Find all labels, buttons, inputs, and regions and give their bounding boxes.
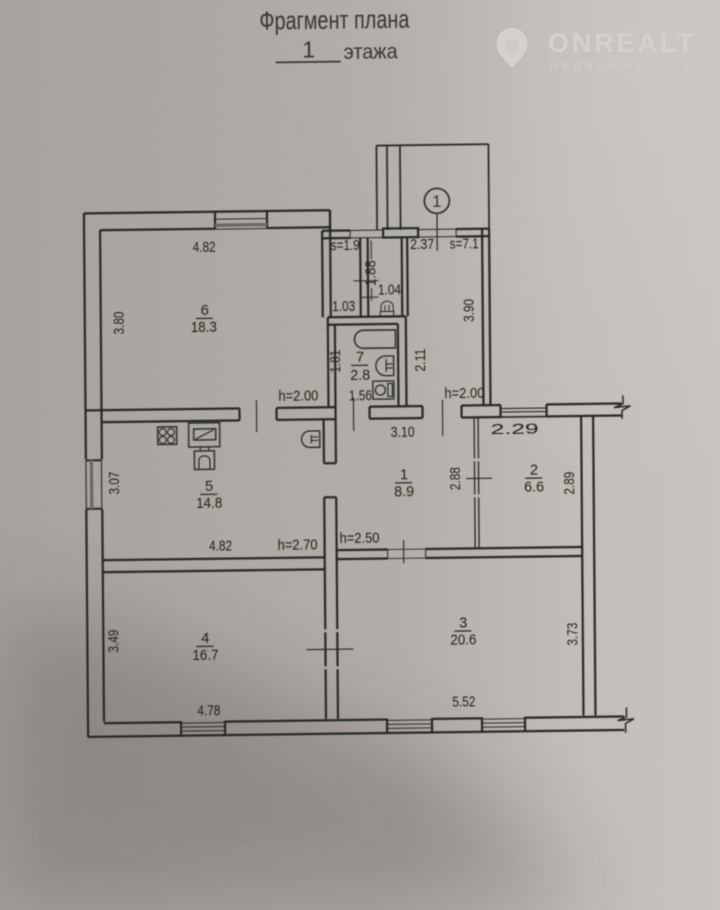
svg-text:3.73: 3.73 <box>565 623 581 646</box>
svg-text:ONREALT: ONREALT <box>548 28 697 58</box>
svg-text:7: 7 <box>356 350 364 366</box>
svg-text:6: 6 <box>201 303 209 319</box>
svg-text:4: 4 <box>201 631 209 647</box>
svg-text:этажа: этажа <box>344 40 398 64</box>
svg-text:h=2.00: h=2.00 <box>278 388 318 405</box>
svg-text:5: 5 <box>205 479 213 495</box>
svg-text:3.80: 3.80 <box>112 311 128 334</box>
svg-text:3.49: 3.49 <box>106 629 122 652</box>
svg-text:8.9: 8.9 <box>394 484 414 500</box>
svg-text:s=1.9: s=1.9 <box>331 238 360 254</box>
svg-text:1: 1 <box>432 192 442 211</box>
svg-text:2.88: 2.88 <box>448 467 464 490</box>
svg-text:2.37: 2.37 <box>410 237 434 253</box>
svg-text:3.10: 3.10 <box>391 425 415 441</box>
svg-text:1: 1 <box>302 36 315 62</box>
svg-text:6.6: 6.6 <box>524 479 544 495</box>
svg-text:2.8: 2.8 <box>350 368 370 384</box>
svg-text:4.78: 4.78 <box>197 703 220 719</box>
svg-text:4.82: 4.82 <box>193 240 216 256</box>
svg-text:НЕДВИЖИМОСТЬ: НЕДВИЖИМОСТЬ <box>550 60 696 72</box>
svg-text:18.3: 18.3 <box>191 320 217 336</box>
svg-text:1: 1 <box>400 467 408 483</box>
svg-text:1.04: 1.04 <box>378 282 401 298</box>
svg-text:3: 3 <box>459 615 467 631</box>
svg-text:2.89: 2.89 <box>562 472 578 495</box>
svg-text:h=2.70: h=2.70 <box>278 537 318 554</box>
svg-text:s=7.1: s=7.1 <box>450 236 479 252</box>
svg-text:Фрагмент плана: Фрагмент плана <box>259 4 410 36</box>
svg-text:h=2.50: h=2.50 <box>339 531 379 548</box>
svg-text:14.8: 14.8 <box>196 496 222 512</box>
svg-text:4.82: 4.82 <box>209 539 232 555</box>
svg-text:3.07: 3.07 <box>107 471 123 494</box>
svg-text:2: 2 <box>530 463 538 479</box>
svg-text:3.90: 3.90 <box>462 299 478 322</box>
svg-text:1.03: 1.03 <box>332 299 355 315</box>
svg-text:2.29: 2.29 <box>491 422 539 439</box>
svg-text:5.52: 5.52 <box>452 694 475 710</box>
svg-text:1.81: 1.81 <box>328 350 344 373</box>
svg-text:h=2.00: h=2.00 <box>444 386 484 403</box>
svg-text:1.56: 1.56 <box>349 388 372 404</box>
svg-text:16.7: 16.7 <box>192 648 218 664</box>
svg-text:2.11: 2.11 <box>413 348 429 371</box>
svg-text:20.6: 20.6 <box>450 632 476 648</box>
